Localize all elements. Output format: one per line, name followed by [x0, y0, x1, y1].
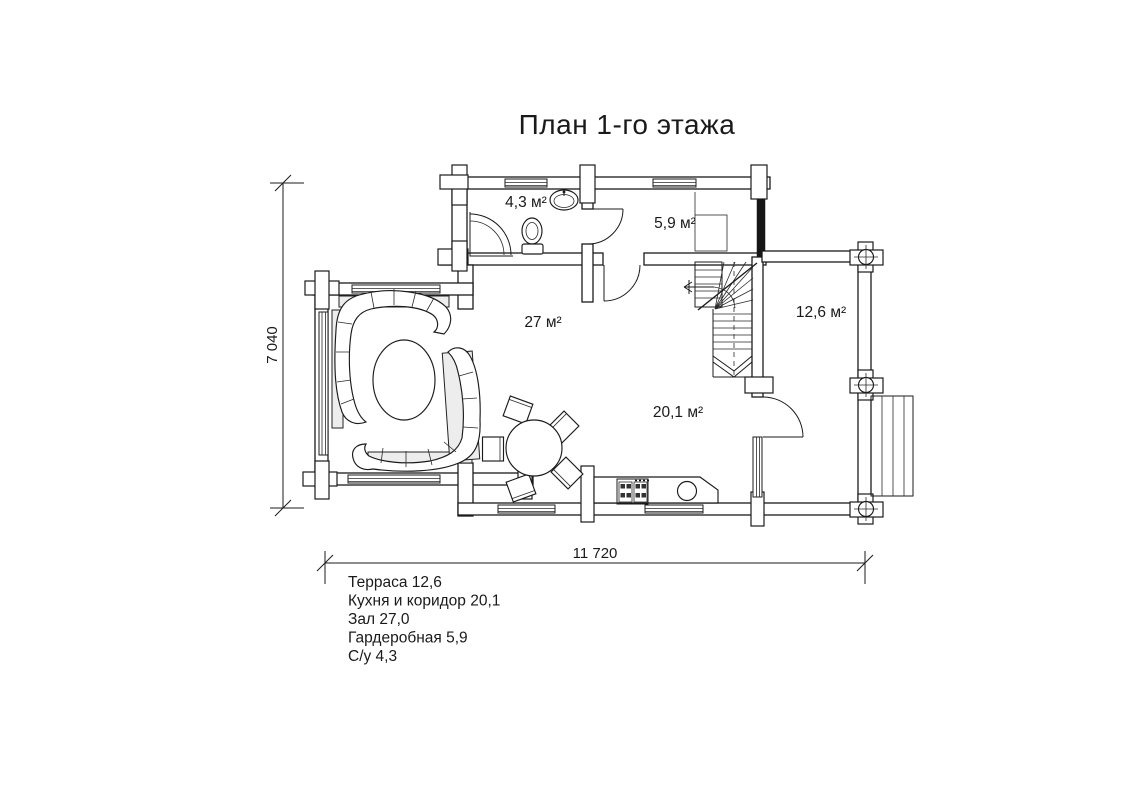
legend-item-kitchen: Кухня и коридор 20,1 [348, 593, 500, 610]
dining-chair [503, 396, 533, 424]
log-column [850, 242, 883, 272]
sink-icon [550, 189, 578, 210]
shower-icon [470, 212, 513, 256]
window [653, 179, 696, 187]
dining-set [483, 396, 583, 502]
room-label-bathroom: 4,3 м² [505, 194, 547, 211]
window [498, 505, 555, 513]
page-title: План 1-го этажа [519, 109, 736, 140]
floor-plan-canvas: 7 040 11 720 План 1-го этажа 4,3 м² 5,9 … [0, 0, 1123, 794]
entry-steps [871, 396, 913, 496]
window [753, 437, 762, 497]
window [319, 312, 328, 455]
door-wardrobe [604, 265, 640, 301]
legend: Терраса 12,6 Кухня и коридор 20,1 Зал 27… [348, 574, 500, 665]
room-label-terrace: 12,6 м² [796, 304, 846, 321]
staircase [684, 262, 757, 377]
room-label-kitchen: 20,1 м² [653, 404, 703, 421]
legend-item-bathroom: С/у 4,3 [348, 648, 397, 665]
kitchen-counter [594, 477, 718, 504]
door-terrace [763, 397, 803, 437]
door-bathroom [588, 209, 623, 244]
floor-plan-page: 7 040 11 720 План 1-го этажа 4,3 м² 5,9 … [0, 0, 1123, 794]
dim-height-label: 7 040 [264, 326, 281, 364]
window [505, 179, 547, 187]
kitchen-sink-icon [678, 482, 697, 501]
doors [588, 209, 803, 437]
dim-width-label: 11 720 [573, 545, 618, 562]
dimension-vertical: 7 040 [264, 175, 304, 516]
coffee-table [373, 340, 435, 420]
room-label-living: 27 м² [524, 314, 561, 331]
toilet-icon [522, 218, 543, 254]
room-label-wardrobe: 5,9 м² [654, 215, 696, 232]
legend-item-wardrobe: Гардеробная 5,9 [348, 630, 468, 647]
window [645, 505, 703, 513]
dining-table [506, 420, 562, 476]
sofa-set [332, 289, 480, 471]
legend-item-terrace: Терраса 12,6 [348, 574, 442, 591]
dining-chair [483, 437, 504, 461]
window [348, 475, 440, 483]
log-column [850, 494, 883, 524]
legend-item-living: Зал 27,0 [348, 611, 410, 628]
partition-lines [695, 192, 727, 251]
